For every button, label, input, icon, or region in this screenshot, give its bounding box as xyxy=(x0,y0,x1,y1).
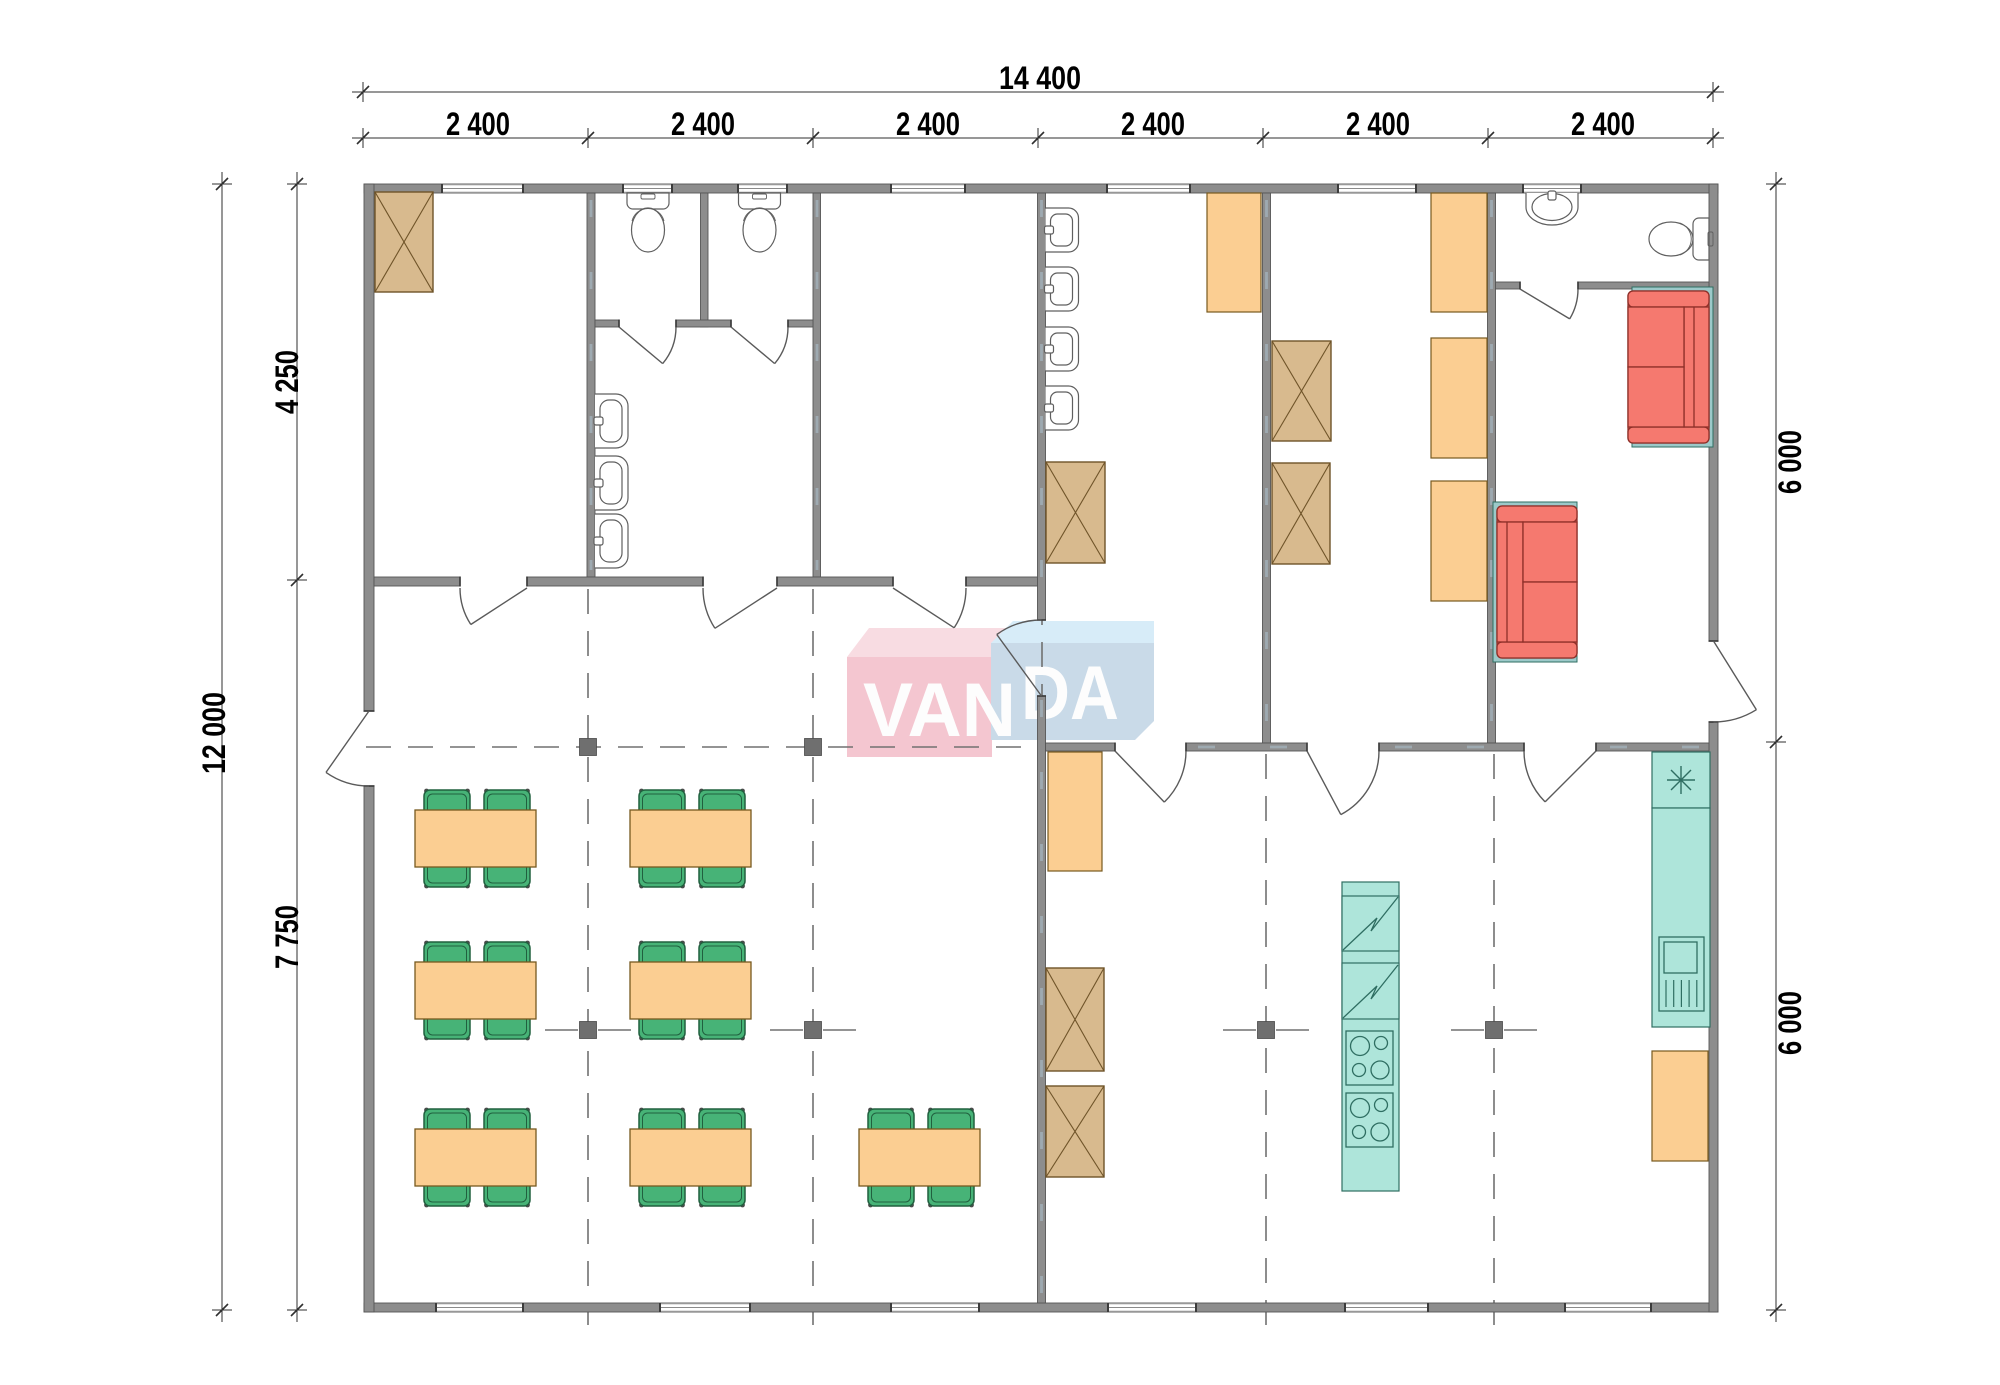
svg-text:2 400: 2 400 xyxy=(1571,106,1635,142)
svg-text:2 400: 2 400 xyxy=(1346,106,1410,142)
svg-text:4 250: 4 250 xyxy=(269,350,305,414)
svg-text:6 000: 6 000 xyxy=(1772,991,1808,1055)
svg-text:2 400: 2 400 xyxy=(896,106,960,142)
svg-text:2 400: 2 400 xyxy=(1121,106,1185,142)
svg-text:7 750: 7 750 xyxy=(269,905,305,969)
svg-text:DA: DA xyxy=(1021,651,1119,736)
svg-text:2 400: 2 400 xyxy=(446,106,510,142)
svg-text:14 400: 14 400 xyxy=(999,60,1081,96)
svg-text:12 000: 12 000 xyxy=(196,692,232,774)
svg-text:VAN: VAN xyxy=(863,668,1016,753)
svg-text:6 000: 6 000 xyxy=(1772,430,1808,494)
svg-text:2 400: 2 400 xyxy=(671,106,735,142)
